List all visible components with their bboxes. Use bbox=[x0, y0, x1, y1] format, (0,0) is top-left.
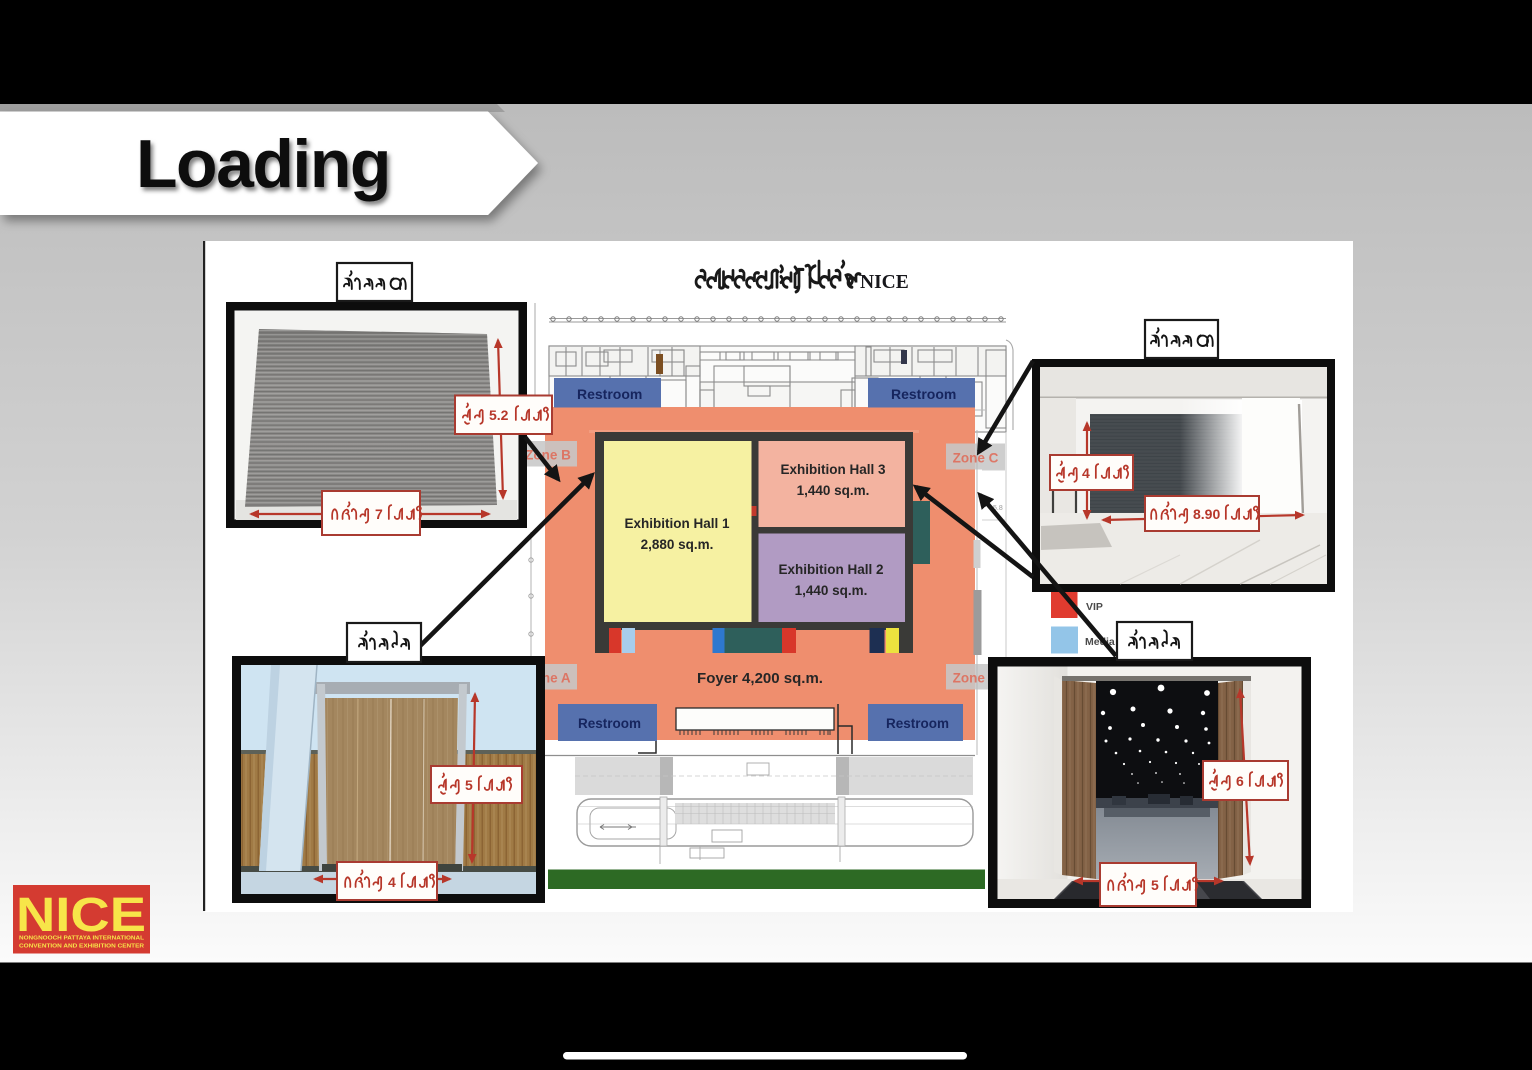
svg-text:4: 4 bbox=[388, 874, 396, 890]
svg-text:Restroom: Restroom bbox=[577, 386, 642, 402]
svg-text:NONGNOOCH PATTAYA INTERNATIONA: NONGNOOCH PATTAYA INTERNATIONAL bbox=[19, 936, 145, 942]
svg-text:2,880 sq.m.: 2,880 sq.m. bbox=[641, 537, 714, 552]
svg-text:Restroom: Restroom bbox=[891, 386, 956, 402]
svg-text:Foyer 4,200 sq.m.: Foyer 4,200 sq.m. bbox=[697, 670, 823, 687]
svg-text:CONVENTION AND EXHIBITION CENT: CONVENTION AND EXHIBITION CENTER bbox=[19, 944, 144, 950]
svg-text:1,440 sq.m.: 1,440 sq.m. bbox=[797, 483, 870, 498]
svg-text:5: 5 bbox=[1151, 877, 1159, 893]
svg-text:Loading: Loading bbox=[136, 126, 390, 202]
svg-text:Zone B: Zone B bbox=[525, 448, 571, 463]
svg-text:VIP: VIP bbox=[1086, 601, 1103, 613]
svg-text:4: 4 bbox=[1082, 465, 1090, 481]
svg-text:NICE: NICE bbox=[16, 889, 146, 942]
svg-text:5.2: 5.2 bbox=[489, 407, 509, 423]
svg-text:Zone C: Zone C bbox=[953, 451, 999, 466]
svg-text:NICE: NICE bbox=[860, 272, 909, 293]
svg-text:Exhibition Hall 3: Exhibition Hall 3 bbox=[780, 462, 886, 477]
svg-text:Exhibition Hall 1: Exhibition Hall 1 bbox=[624, 516, 730, 531]
svg-text:6: 6 bbox=[1236, 773, 1244, 789]
svg-text:Restroom: Restroom bbox=[886, 716, 949, 731]
svg-text:7: 7 bbox=[375, 506, 383, 522]
svg-text:Restroom: Restroom bbox=[578, 716, 641, 731]
svg-text:1,440 sq.m.: 1,440 sq.m. bbox=[795, 583, 868, 598]
svg-text:Exhibition Hall 2: Exhibition Hall 2 bbox=[778, 562, 883, 577]
svg-text:5: 5 bbox=[465, 777, 473, 793]
svg-text:8.90: 8.90 bbox=[1193, 506, 1220, 522]
